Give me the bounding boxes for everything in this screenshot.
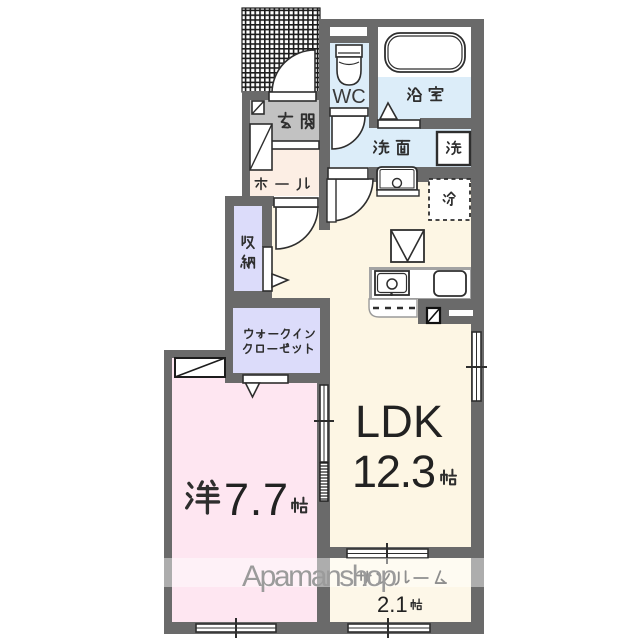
svg-text:12.3: 12.3 bbox=[352, 446, 436, 497]
svg-text:Apamanshop: Apamanshop bbox=[242, 560, 397, 593]
svg-text:7.7: 7.7 bbox=[224, 474, 288, 525]
svg-text:WC: WC bbox=[332, 86, 365, 108]
svg-text:2.1: 2.1 bbox=[377, 592, 408, 617]
svg-text:LDK: LDK bbox=[355, 396, 443, 447]
